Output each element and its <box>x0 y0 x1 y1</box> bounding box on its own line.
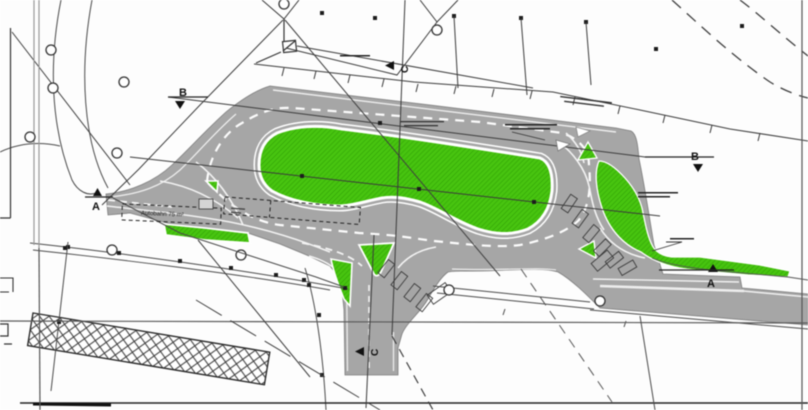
svg-text:A: A <box>707 278 715 290</box>
svg-text:C: C <box>370 349 381 356</box>
svg-text:C: C <box>400 66 411 73</box>
svg-text:A: A <box>92 201 100 213</box>
